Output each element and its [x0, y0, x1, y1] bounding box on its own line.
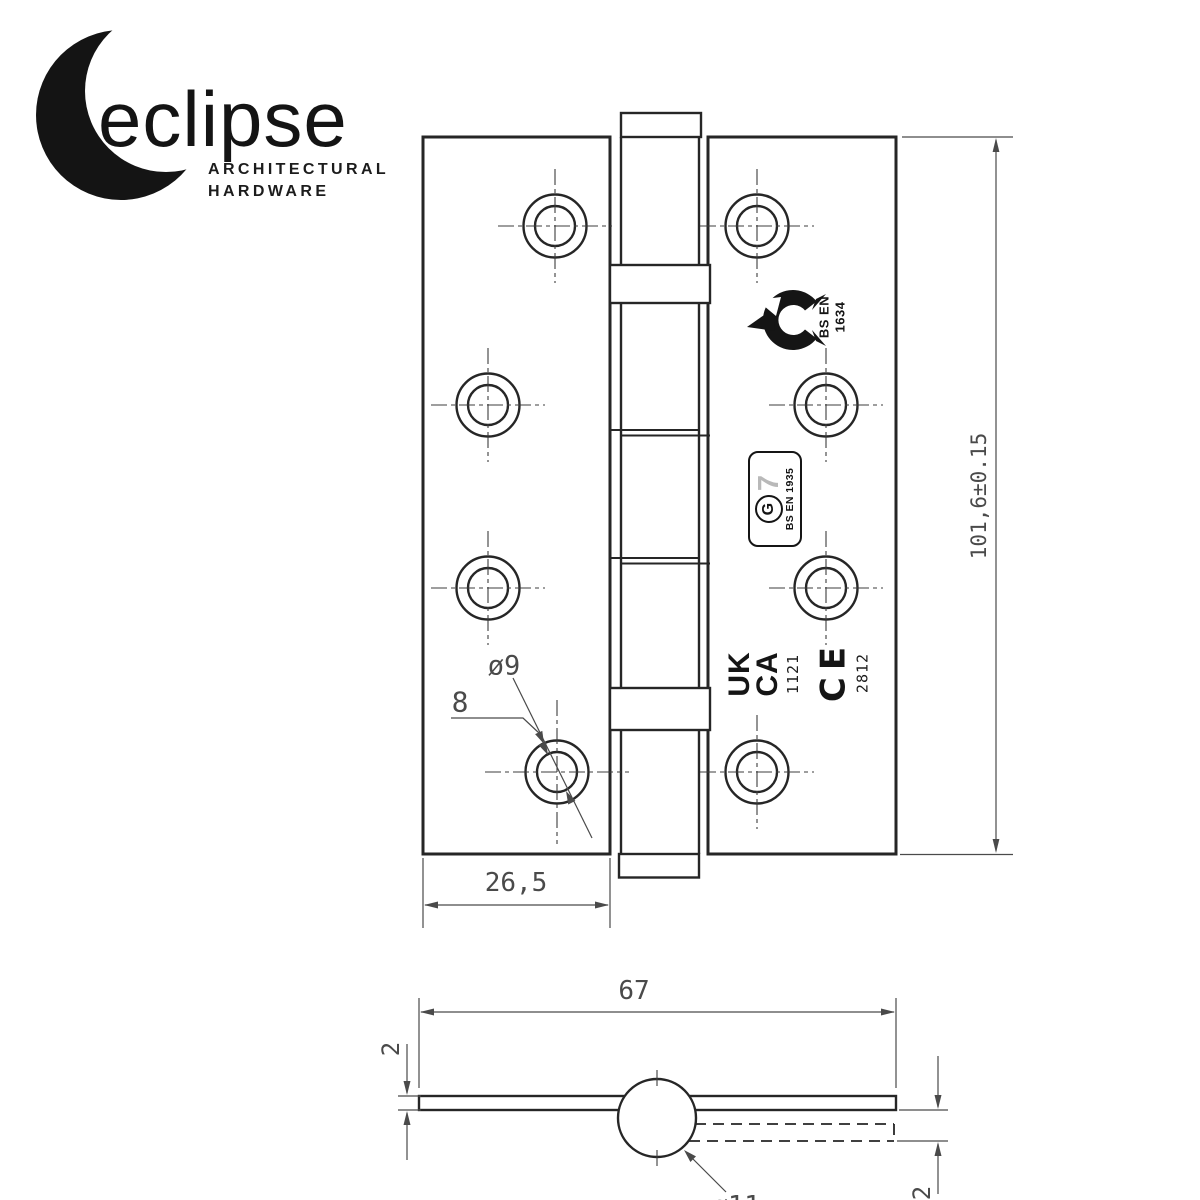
grade-letter: G	[755, 495, 783, 523]
screw-hole	[431, 531, 545, 645]
screw-hole	[498, 169, 612, 283]
ce-mark: CE 2812	[817, 640, 872, 706]
grade-standard: BS EN 1935	[784, 468, 796, 530]
screw-hole	[431, 348, 545, 462]
grade-badge: G 7 BS EN 1935	[748, 451, 802, 547]
ukca-mark: UK CA 1121	[726, 651, 802, 696]
screw-hole	[769, 348, 883, 462]
thickness-dimension-left	[398, 1044, 421, 1160]
screw-hole	[485, 700, 629, 844]
grade-number: 7	[755, 475, 784, 491]
knuckle-diameter-label: ø11	[712, 1191, 761, 1200]
screw-hole	[700, 715, 814, 829]
drawing-canvas: eclipse ARCHITECTURAL HARDWARE	[0, 0, 1200, 1200]
height-dimension	[900, 137, 1013, 855]
leaf-width-dimension-label: 26,5	[485, 868, 548, 898]
screw-hole	[769, 531, 883, 645]
thickness-dimension-right	[897, 1056, 948, 1194]
open-width-dimension-label: 67	[618, 976, 649, 1006]
hinge-technical-drawing	[0, 0, 1200, 1200]
leaf-thickness-right-label: 2	[908, 1186, 936, 1200]
countersink-ref-label: 8	[452, 686, 469, 719]
fire-standard-text: BS EN 1634	[816, 296, 847, 338]
fire-flame-icon	[747, 290, 826, 350]
leaf-thickness-left-label: 2	[377, 1042, 405, 1056]
screw-hole-diameter-label: ø9	[488, 651, 521, 682]
ce-letters: CE	[817, 640, 851, 706]
ukca-notified-body: 1121	[784, 651, 802, 696]
knuckle-callout-leader	[684, 1150, 726, 1192]
plate-height-dimension-label: 101,6±0.15	[967, 433, 991, 559]
front-view-outline	[423, 137, 896, 854]
fire-standard-line1: BS EN	[816, 296, 832, 338]
fire-standard-line2: 1634	[832, 296, 848, 338]
ce-notified-body: 2812	[854, 640, 872, 706]
hinge-knuckle-barrel	[610, 113, 710, 878]
ukca-line1: UK	[726, 651, 754, 696]
ukca-line2: CA	[754, 651, 782, 696]
screw-hole	[700, 169, 814, 283]
side-view	[419, 1070, 896, 1166]
